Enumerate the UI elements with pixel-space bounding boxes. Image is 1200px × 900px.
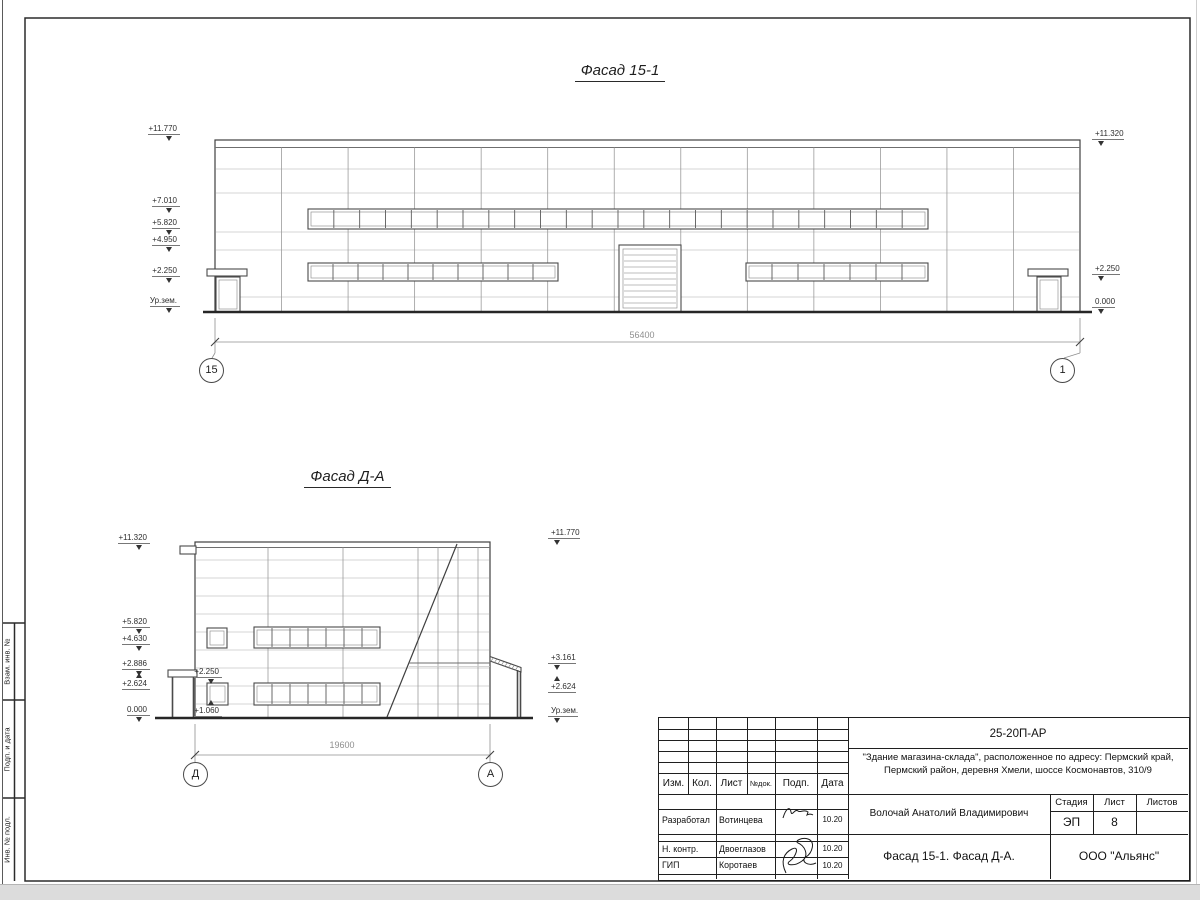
row-date: 10.20: [817, 813, 848, 827]
margin-label-inv: Инв. № подл.: [2, 795, 13, 885]
elevation-value: +7.010: [152, 196, 180, 207]
title-block-line: [775, 718, 776, 879]
elevation-value: Ур.зем.: [150, 296, 180, 307]
sheet-number: 8: [1093, 811, 1136, 834]
row-name: Двоеглазов: [719, 842, 774, 856]
col-header-list: Лист: [716, 775, 747, 792]
elevation-mark: Ур.зем.: [128, 296, 180, 307]
col-header-ndok: №док.: [747, 775, 775, 792]
signature-razrabotal: [781, 805, 815, 823]
elevation-value: +11.770: [548, 528, 580, 539]
col-header-izm: Изм.: [659, 775, 688, 792]
title-block-line: [659, 729, 848, 730]
elevation-value: 0.000: [1092, 297, 1115, 308]
stage-label: Стадия: [1050, 794, 1093, 811]
elevation-value: +2.250: [194, 667, 222, 678]
elevation-value: +1.060: [194, 706, 222, 717]
elevation-mark: +7.010: [128, 196, 180, 207]
elevation-mark: +4.950: [128, 235, 180, 246]
elevation-mark: Ур.зем.: [548, 706, 603, 717]
bottom-margin-strip: [0, 884, 1200, 900]
row-date: 10.20: [817, 858, 848, 873]
sheet-label: Лист: [1093, 794, 1136, 811]
elevation-value: +11.320: [118, 533, 150, 544]
margin-label-podp: Подп. и дата: [2, 705, 13, 795]
elevation-value: +2.250: [152, 266, 180, 277]
elevation-value: +4.630: [122, 634, 150, 645]
facade2-title-text: Фасад Д-А: [304, 468, 390, 488]
title-block-line: [659, 751, 848, 752]
elevation-mark: +11.770: [548, 528, 603, 539]
col-header-data: Дата: [817, 775, 848, 792]
elevation-mark: +2.250: [186, 667, 222, 678]
row-name: Коротаев: [719, 858, 774, 873]
drawing-sheet: Фасад 15-1 Фасад Д-А +11.770 +7.010 +5.8…: [0, 0, 1200, 900]
sheets-label: Листов: [1136, 794, 1188, 811]
elevation-mark: +5.820: [128, 218, 180, 229]
elevation-mark: +2.624: [95, 679, 150, 690]
facade1-title: Фасад 15-1: [540, 62, 700, 82]
elevation-mark: +5.820: [95, 617, 150, 628]
facade2-title: Фасад Д-А: [280, 468, 415, 488]
approver-name: Волочай Анатолий Владимирович: [848, 794, 1050, 834]
row-role: Н. контр.: [662, 842, 715, 856]
elevation-value: +2.624: [548, 682, 576, 693]
title-block-line: [659, 773, 848, 774]
elevation-value: +5.820: [152, 218, 180, 229]
elevation-mark: +2.886: [95, 659, 150, 670]
elevation-value: 0.000: [127, 705, 150, 716]
title-block-line: [659, 762, 848, 763]
company-name: ООО "Альянс": [1050, 834, 1188, 879]
elevation-mark: 0.000: [1092, 297, 1144, 308]
elevation-mark: +4.630: [95, 634, 150, 645]
axis-bubble-a: А: [478, 762, 503, 787]
axis-bubble-d: Д: [183, 762, 208, 787]
elevation-value: +4.950: [152, 235, 180, 246]
elevation-mark: +1.060: [186, 706, 222, 717]
elevation-value: +2.624: [122, 679, 150, 690]
elevation-value: +2.250: [1092, 264, 1120, 275]
elevation-mark: +2.250: [128, 266, 180, 277]
elevation-value: +2.886: [122, 659, 150, 670]
title-block-line: [848, 748, 1188, 749]
elevation-value: +3.161: [548, 653, 576, 664]
elevation-mark: +2.624: [548, 682, 603, 693]
elevation-value: +11.770: [148, 124, 180, 135]
signature-gip: [778, 833, 820, 877]
row-date: 10.20: [817, 842, 848, 856]
elevation-value: +5.820: [122, 617, 150, 628]
elevation-mark: +2.250: [1092, 264, 1144, 275]
margin-label-vzam: Взам. инв. №: [2, 617, 13, 707]
title-block-line: [659, 740, 848, 741]
stage-value: ЭП: [1050, 811, 1093, 834]
project-address-line2: Пермский район, деревня Хмели, шоссе Кос…: [851, 764, 1185, 777]
project-address-line1: "Здание магазина-склада", расположенное …: [851, 751, 1185, 764]
elevation-mark: +11.320: [1092, 129, 1144, 140]
row-role: Разработал: [662, 813, 715, 827]
document-number: 25-20П-АР: [848, 721, 1188, 747]
title-block-line: [716, 718, 717, 879]
col-header-podp: Подп.: [775, 775, 817, 792]
facade1-title-text: Фасад 15-1: [575, 62, 666, 82]
dimension-label: 19600: [311, 740, 373, 750]
elevation-value: Ур.зем.: [548, 706, 578, 717]
elevation-mark: +3.161: [548, 653, 603, 664]
row-name: Вотинцева: [719, 813, 774, 827]
row-role: ГИП: [662, 858, 715, 873]
axis-bubble-15: 15: [199, 358, 224, 383]
elevation-value: +11.320: [1092, 129, 1124, 140]
col-header-kol: Кол.: [688, 775, 716, 792]
axis-bubble-1: 1: [1050, 358, 1075, 383]
elevation-mark: +11.770: [128, 124, 180, 135]
dimension-label: 56400: [610, 330, 674, 340]
title-block: Изм. Кол. Лист №док. Подп. Дата 25-20П-А…: [658, 717, 1190, 881]
elevation-mark: +11.320: [95, 533, 150, 544]
drawing-title: Фасад 15-1. Фасад Д-А.: [848, 834, 1050, 879]
elevation-mark: 0.000: [95, 705, 150, 716]
title-block-line: [659, 809, 848, 810]
